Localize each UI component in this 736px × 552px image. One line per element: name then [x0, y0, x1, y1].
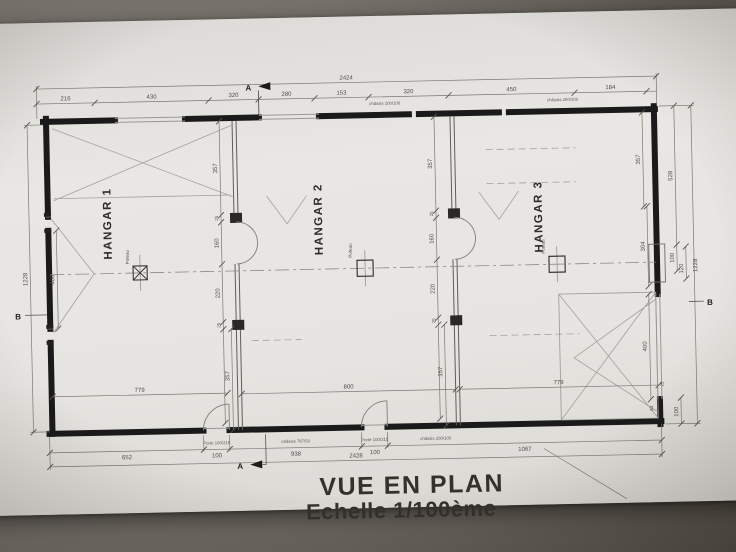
dim-bottom-segment: 1067: [518, 447, 532, 453]
dim-top-segment: 216: [60, 96, 71, 102]
dim-right: 100: [674, 406, 680, 417]
hangar3-door-lines: [479, 191, 520, 220]
column-label: Poteau: [541, 239, 546, 254]
partition-column: [448, 208, 460, 218]
dim-top-segment: 184: [605, 85, 616, 91]
window-jamb: [46, 325, 53, 329]
right-door-cross: [559, 292, 659, 420]
hangar-label: HANGAR 1: [101, 187, 115, 259]
dim-partition: 160: [429, 233, 435, 244]
dim-partition: 25: [429, 211, 434, 217]
partition-column: [230, 213, 242, 223]
dim-right-overall: 1228: [693, 258, 699, 272]
dim-top-segment: 450: [506, 87, 517, 93]
dim-left-inner: 400: [50, 274, 56, 285]
dim-bottom-segment: 938: [291, 452, 302, 458]
porte-note: Porte 100/215: [203, 440, 231, 446]
left-wall-door-lines: [51, 218, 95, 333]
hangar1-door-lines: [52, 125, 233, 201]
dim-bottom-segment: 100: [370, 450, 381, 456]
dim-bottom-segment: 100: [212, 453, 223, 459]
section-flag-a-top: [258, 82, 270, 90]
title-block: VUE EN PLAN Echelle 1/100ème: [305, 469, 504, 524]
interior-columns: [133, 256, 565, 281]
dim-partition: 220: [430, 283, 436, 294]
chassis-note: châssis 200/100: [420, 435, 452, 441]
dim-right: 304: [641, 241, 647, 252]
column-label: Poteau: [125, 250, 130, 265]
hangar2-door-lines: [267, 195, 308, 224]
chassis-note: châssis 787/50: [281, 438, 310, 444]
window-jamb: [44, 213, 51, 217]
dim-hangar-width: 779: [554, 380, 565, 386]
section-marker-a: A: [245, 84, 251, 93]
dim-right: 357: [636, 154, 642, 165]
porte-note: Porte 100/215: [361, 437, 389, 443]
dim-right: 528: [668, 170, 674, 181]
section-marker-a: A: [237, 462, 243, 471]
partition-column: [450, 315, 462, 325]
section-markers: A A B B: [10, 73, 716, 476]
room-labels: HANGAR 1 HANGAR 2 HANGAR 3 Poteau Poteau…: [101, 178, 546, 264]
section-marker-b: B: [707, 298, 713, 307]
dim-hangar-width: 800: [344, 384, 355, 390]
dim-top-overall: 2424: [339, 75, 353, 81]
dim-right: 84: [649, 405, 654, 411]
dim-top-segment: 153: [336, 91, 347, 97]
dim-right: 25: [660, 381, 665, 387]
section-flag-a-bottom: [250, 460, 262, 468]
dim-partition: 357: [428, 158, 434, 169]
hangar-label: HANGAR 2: [312, 183, 326, 255]
dim-top-segment: 320: [403, 89, 414, 95]
dim-right: 400: [643, 341, 649, 352]
floor-plan-photo: 2424 216 430 320 280 153 320 450 184 châ…: [0, 0, 736, 552]
dim-partition: 357: [438, 366, 444, 377]
dimension-text: 2424 216 430 320 280 153 320 450 184 châ…: [19, 68, 703, 466]
floor-plan-drawing: 2424 216 430 320 280 153 320 450 184 châ…: [0, 0, 736, 552]
partition-column: [232, 320, 244, 330]
section-marker-b: B: [15, 312, 21, 321]
dim-right: 120: [679, 263, 685, 274]
dim-top-segment: 320: [228, 93, 239, 99]
scale-label: Echelle 1/100ème: [306, 496, 497, 525]
dim-top-segment: 430: [146, 95, 157, 101]
dim-partition: 220: [216, 288, 222, 299]
dim-partition: 160: [214, 238, 220, 249]
dim-top-segment: 280: [281, 92, 292, 98]
dim-right: 100: [670, 252, 676, 263]
dim-partition: 25: [214, 215, 219, 221]
dim-hangar-width: 779: [135, 388, 146, 394]
dim-partition: 357: [225, 370, 231, 381]
dim-partition: 25: [431, 318, 436, 324]
dim-bottom-segment: 652: [122, 455, 133, 461]
column-label: Poteau: [348, 243, 353, 258]
dim-bottom-overall: 2428: [349, 453, 363, 459]
paper-sheet: 2424 216 430 320 280 153 320 450 184 châ…: [0, 8, 736, 516]
dim-partition: 357: [213, 163, 219, 174]
window-jamb: [44, 229, 51, 233]
dim-left-overall: 1228: [23, 272, 29, 286]
roof-dash-lines: [248, 148, 580, 341]
dimension-ticks: [23, 72, 701, 470]
window-jamb: [47, 341, 54, 345]
chassis-note: châssis 200/100: [547, 97, 579, 103]
dim-partition: 25: [216, 322, 221, 328]
chassis-note: châssis 200/100: [369, 100, 401, 106]
